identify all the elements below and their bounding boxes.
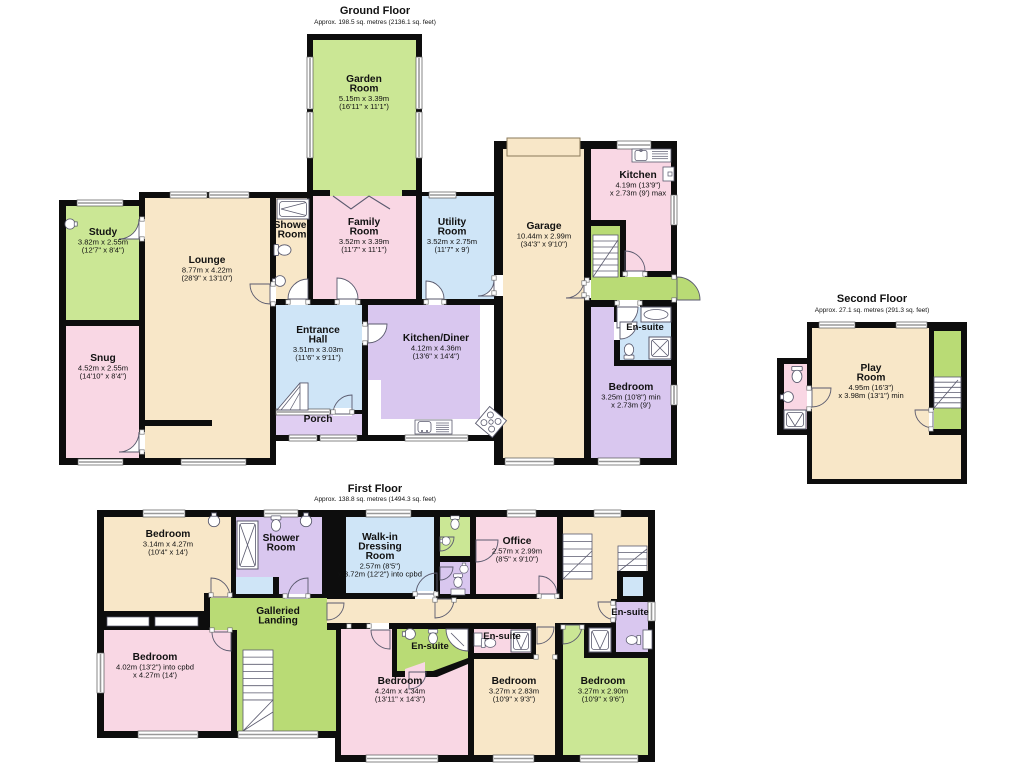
svg-text:Approx. 138.8 sq. metres (1494: Approx. 138.8 sq. metres (1494.3 sq. fee… (314, 496, 436, 503)
svg-text:Bedroom: Bedroom (609, 382, 654, 393)
svg-text:(11'7" x 9'): (11'7" x 9') (435, 245, 470, 254)
svg-text:Study: Study (89, 227, 118, 238)
svg-text:Room: Room (366, 551, 395, 562)
svg-text:Kitchen/Diner: Kitchen/Diner (403, 333, 469, 344)
svg-text:x 2.73m (9'): x 2.73m (9') (611, 401, 651, 410)
svg-text:x 2.73m (9') max: x 2.73m (9') max (610, 189, 667, 198)
svg-text:x 4.27m (14'): x 4.27m (14') (133, 671, 178, 680)
svg-text:Approx. 198.5 sq. metres (2136: Approx. 198.5 sq. metres (2136.1 sq. fee… (314, 19, 436, 26)
svg-text:(11'7" x 11'1"): (11'7" x 11'1") (341, 245, 387, 254)
svg-text:(12'7" x 8'4"): (12'7" x 8'4") (82, 246, 125, 255)
svg-text:Landing: Landing (258, 616, 298, 627)
svg-text:Bedroom: Bedroom (146, 529, 191, 540)
svg-text:(10'9" x 9'6"): (10'9" x 9'6") (582, 695, 625, 704)
svg-text:Room: Room (857, 373, 886, 384)
svg-text:(13'6" x 14'4"): (13'6" x 14'4") (413, 352, 460, 361)
svg-text:En-suite: En-suite (411, 641, 448, 652)
svg-text:x 3.98m (13'1") min: x 3.98m (13'1") min (838, 391, 903, 400)
svg-text:Second Floor: Second Floor (837, 293, 908, 305)
svg-text:En-suite: En-suite (626, 322, 663, 333)
svg-text:Bedroom: Bedroom (581, 676, 626, 687)
svg-text:Porch: Porch (304, 414, 333, 425)
svg-text:(34'3" x 9'10"): (34'3" x 9'10") (521, 240, 568, 249)
svg-text:Garage: Garage (526, 221, 561, 232)
svg-text:Room: Room (350, 227, 379, 238)
svg-text:(16'11" x 11'1"): (16'11" x 11'1") (339, 102, 389, 111)
svg-text:Office: Office (503, 536, 532, 547)
svg-text:Hall: Hall (309, 335, 328, 346)
svg-text:Snug: Snug (90, 353, 115, 364)
svg-text:(11'6" x 9'11"): (11'6" x 9'11") (295, 353, 341, 362)
svg-text:Bedroom: Bedroom (133, 652, 178, 663)
svg-text:Room: Room (438, 227, 467, 238)
svg-text:En-suite: En-suite (483, 631, 520, 642)
svg-text:(28'9" x 13'10"): (28'9" x 13'10") (182, 274, 233, 283)
svg-text:Room: Room (350, 84, 379, 95)
svg-text:Bedroom: Bedroom (492, 676, 537, 687)
svg-text:Bedroom: Bedroom (378, 676, 423, 687)
svg-text:Lounge: Lounge (189, 255, 226, 266)
svg-text:(10'4" x 14'): (10'4" x 14') (148, 548, 188, 557)
svg-text:(13'11" x 14'3"): (13'11" x 14'3") (375, 695, 426, 704)
svg-text:(8'5" x 9'10"): (8'5" x 9'10") (496, 555, 539, 564)
svg-text:First Floor: First Floor (348, 483, 403, 495)
svg-text:(14'10" x 8'4"): (14'10" x 8'4") (80, 372, 127, 381)
svg-text:Approx. 27.1 sq. metres (291.3: Approx. 27.1 sq. metres (291.3 sq. feet) (815, 307, 930, 314)
svg-text:Kitchen: Kitchen (619, 170, 656, 181)
svg-text:Ground Floor: Ground Floor (340, 5, 411, 17)
svg-text:Room: Room (267, 543, 296, 554)
svg-text:(10'9" x 9'3"): (10'9" x 9'3") (493, 695, 536, 704)
svg-text:x 3.72m (12'2") into cpbd: x 3.72m (12'2") into cpbd (338, 570, 422, 579)
svg-text:Room: Room (278, 230, 307, 241)
svg-text:En-suite: En-suite (611, 607, 648, 618)
